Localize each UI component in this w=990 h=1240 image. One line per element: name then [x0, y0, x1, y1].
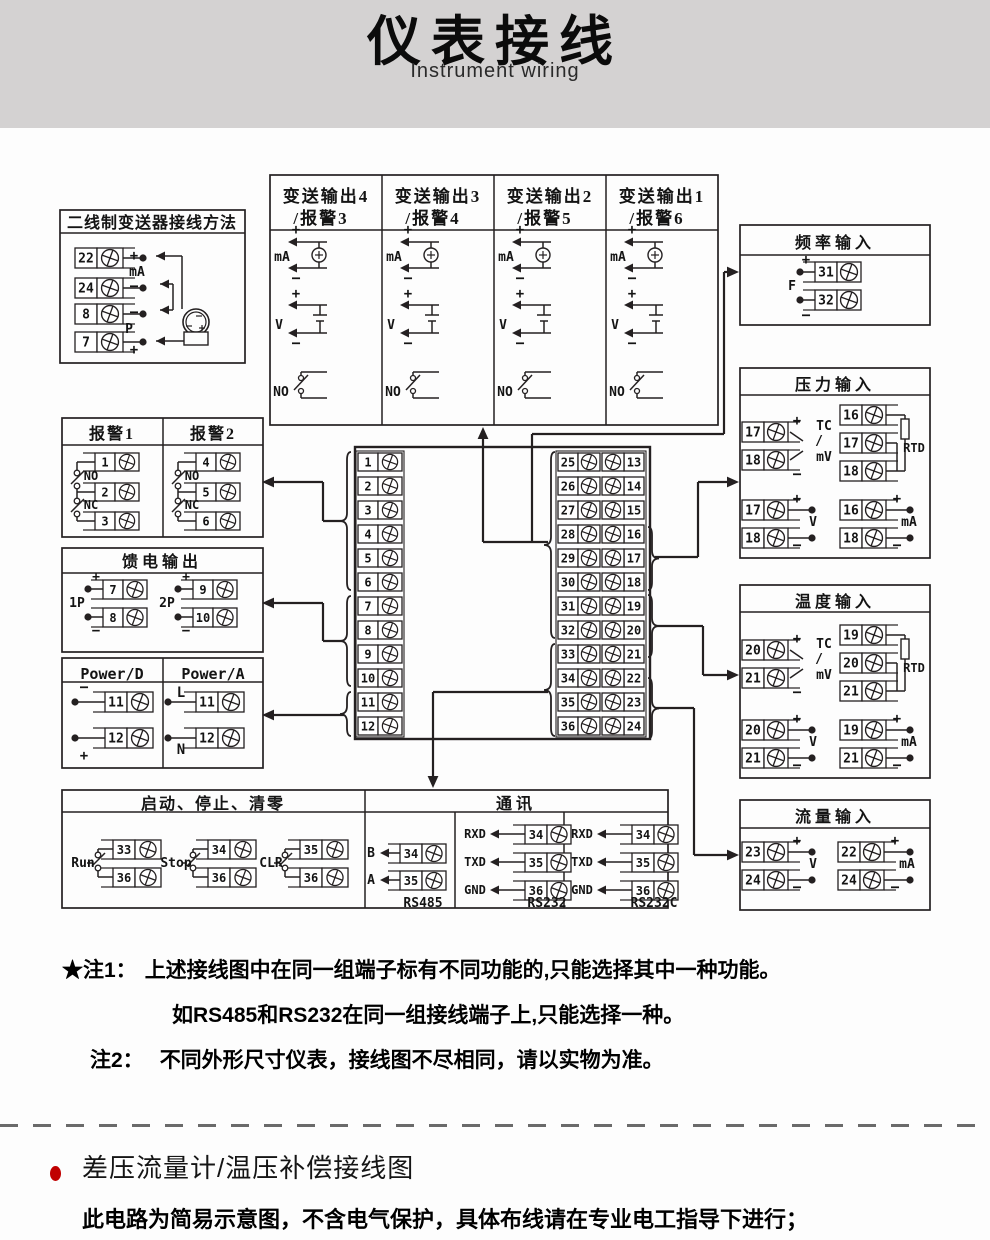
switch-contact-icon [95, 852, 101, 858]
terminal-number: 24 [745, 874, 761, 889]
terminal-number: 16 [843, 409, 859, 424]
terminal-number: 14 [627, 480, 641, 494]
label: 1P [69, 596, 85, 611]
terminal-number: 6 [364, 576, 371, 590]
label: − [627, 334, 636, 352]
arrowhead-icon [727, 267, 739, 278]
wire-dot [174, 585, 181, 592]
red-bullet-icon [50, 1166, 61, 1181]
brace [544, 452, 555, 638]
label: + [292, 222, 300, 238]
terminal-number: 34 [212, 843, 226, 857]
terminal-number: 34 [636, 828, 650, 842]
label: NC [84, 498, 98, 512]
note1-line2: 如RS485和RS232在同一组接线端子上,只能选择一种。 [172, 1004, 684, 1027]
wire-dot [174, 613, 181, 620]
label: TXD [571, 855, 593, 869]
terminal-number: 23 [745, 846, 761, 861]
label: − [403, 269, 412, 287]
arrowhead-icon [490, 830, 499, 839]
label: − [182, 623, 190, 639]
terminal-number: 6 [202, 515, 209, 529]
label: RXD [464, 827, 486, 841]
wire-dot [906, 754, 913, 761]
wire [71, 471, 84, 484]
transmitter-icon [183, 309, 209, 335]
label: mV [816, 668, 832, 683]
wire-dot [906, 506, 913, 513]
label: V [809, 735, 817, 750]
box-title: Power/A [181, 665, 244, 683]
label: + [130, 248, 138, 264]
wire-dot [906, 726, 913, 733]
terminal-number: 20 [843, 657, 859, 672]
terminal-number: 24 [841, 874, 857, 889]
wire-dot [808, 754, 815, 761]
note-2-row: 注2：不同外形尺寸仪表，接线图不尽相同，请以实物为准。 [62, 1046, 967, 1075]
label: NO [185, 469, 199, 483]
box-title: 流量输入 [795, 807, 875, 826]
box-title: 频率输入 [795, 233, 875, 252]
arrowhead-icon [400, 238, 409, 247]
terminal-number: 18 [843, 465, 859, 480]
terminal-number: 23 [627, 696, 641, 710]
arrowhead-icon [512, 238, 521, 247]
switch-contact-icon [175, 470, 181, 476]
wire [630, 375, 644, 390]
box-title: /报警6 [628, 208, 684, 228]
label: / [815, 652, 823, 667]
switch-contact-icon [411, 389, 416, 394]
box-title: /报警3 [292, 208, 348, 228]
switch-contact-icon [635, 376, 640, 381]
label: + [404, 286, 412, 302]
terminal-number: 9 [199, 583, 206, 597]
label: − [79, 678, 88, 696]
label: mA [610, 250, 626, 265]
terminal-number: 33 [561, 648, 575, 662]
terminal-number: 19 [843, 629, 859, 644]
label: / [815, 434, 823, 449]
brace [340, 692, 351, 736]
switch-contact-icon [74, 511, 80, 517]
arrowhead-icon [490, 886, 499, 895]
label: F [788, 279, 796, 294]
wire-dot [808, 506, 815, 513]
label: + [292, 286, 300, 302]
box-title: 启动、停止、清零 [141, 794, 285, 813]
terminal-number: 34 [561, 672, 575, 686]
label: L [177, 685, 185, 701]
terminal-number: 17 [627, 552, 641, 566]
terminal-number: 21 [745, 672, 761, 687]
terminal-number: 35 [304, 843, 318, 857]
switch-contact-icon [74, 483, 80, 489]
terminal-number: 1 [101, 456, 108, 470]
terminal-number: 11 [199, 696, 215, 711]
switch-contact-icon [282, 852, 288, 858]
terminal-number: 9 [364, 648, 371, 662]
label: NO [497, 385, 513, 400]
label: N [177, 742, 185, 758]
transmitter-flange [184, 332, 208, 345]
label: mV [816, 450, 832, 465]
label: − [129, 277, 138, 295]
label: − [291, 334, 300, 352]
arrowhead-icon [380, 876, 389, 885]
label: TC [816, 419, 832, 434]
terminal-number: 36 [117, 871, 131, 885]
arrowhead-icon [727, 850, 739, 861]
terminal-number: 18 [745, 454, 761, 469]
label: − [792, 536, 801, 554]
circle-icon [186, 312, 206, 332]
arrowhead-icon [624, 238, 633, 247]
wire [790, 669, 803, 678]
terminal-number: 35 [404, 874, 418, 888]
label: + [793, 631, 801, 647]
terminal-number: 32 [561, 624, 575, 638]
terminal-number: 27 [561, 504, 575, 518]
switch-contact-icon [175, 498, 181, 504]
page-header: 仪表接线 Instrument wiring [0, 0, 990, 128]
label: GND [571, 883, 593, 897]
wire [790, 451, 803, 460]
label: + [628, 286, 636, 302]
terminal-number: 2 [364, 480, 371, 494]
brace [544, 644, 555, 736]
label: TC [816, 637, 832, 652]
arrowhead-icon [156, 337, 165, 346]
terminal-number: 21 [843, 752, 859, 767]
terminal-number: 36 [304, 871, 318, 885]
label: A [367, 873, 375, 888]
brace [340, 452, 351, 590]
label: + [793, 711, 801, 727]
label: 2P [159, 596, 175, 611]
switch-contact-icon [175, 511, 181, 517]
label: + [404, 222, 412, 238]
label: + [516, 222, 524, 238]
switch-contact-icon [411, 376, 416, 381]
label: − [792, 683, 801, 701]
note1-text: 上述接线图中在同一组端子标有不同功能的,只能选择其中一种功能。 [145, 959, 781, 982]
wire-dot [906, 876, 913, 883]
box-title: 变送输出4 [283, 186, 370, 206]
wire [172, 499, 185, 512]
wiring-diagram: 2224873132123456789101112111233363436353… [0, 130, 990, 952]
switch-contact-icon [95, 865, 101, 871]
terminal-number: 31 [561, 600, 575, 614]
arrowhead-icon [727, 477, 739, 488]
terminal-number: 33 [117, 843, 131, 857]
arrowhead-icon [597, 858, 606, 867]
wire [790, 650, 803, 659]
label: GND [464, 883, 486, 897]
arrowhead-icon [597, 830, 606, 839]
label: + [891, 833, 899, 849]
label: − [515, 334, 524, 352]
terminal-number: 12 [361, 720, 375, 734]
terminal-number: 8 [109, 611, 116, 625]
label: V [611, 318, 619, 333]
terminal-number: 4 [364, 528, 371, 542]
arrowhead-icon [288, 238, 297, 247]
label: + [628, 222, 636, 238]
note1-label: ★注1： [62, 959, 137, 982]
terminal-number: 36 [212, 871, 226, 885]
terminal-number: 20 [745, 724, 761, 739]
terminal-number: 20 [627, 624, 641, 638]
terminal-number: 5 [364, 552, 371, 566]
label: + [893, 711, 901, 727]
resistor-icon [901, 639, 909, 659]
dashed-divider [0, 1124, 990, 1127]
terminal-number: 1 [364, 456, 371, 470]
label: NO [84, 469, 98, 483]
wire-dot [796, 268, 803, 275]
label: V [387, 318, 395, 333]
label: mA [274, 250, 290, 265]
arrowhead-icon [727, 670, 739, 681]
switch-contact-icon [74, 498, 80, 504]
label: − [515, 269, 524, 287]
label: RTD [903, 441, 925, 455]
terminal-number: 18 [843, 532, 859, 547]
label: − [403, 334, 412, 352]
box-title: 报警1 [89, 424, 135, 443]
wire-dot [164, 698, 171, 705]
terminal-number: 19 [627, 600, 641, 614]
arrowhead-icon [597, 886, 606, 895]
box-title: /报警5 [516, 208, 572, 228]
box-title: 温度输入 [794, 592, 875, 611]
switch-contact-icon [282, 865, 288, 871]
label: mA [901, 735, 917, 750]
arrowhead-icon [380, 849, 389, 858]
note-1-row: ★注1：上述接线图中在同一组端子标有不同功能的,只能选择其中一种功能。 [62, 956, 967, 985]
label: RS232C [631, 896, 678, 911]
wire-dot [139, 310, 146, 317]
wire [790, 432, 803, 441]
label: + [793, 833, 801, 849]
wire-dot [808, 726, 815, 733]
label: mA [498, 250, 514, 265]
terminal-number: 10 [196, 611, 210, 625]
wire-dot [796, 296, 803, 303]
label: mA [386, 250, 402, 265]
terminal-number: 8 [82, 308, 90, 323]
arrowhead-icon [490, 858, 499, 867]
wire-dot [906, 848, 913, 855]
terminal-number: 28 [561, 528, 575, 542]
wire [71, 499, 84, 512]
terminal-number: 21 [745, 752, 761, 767]
wire [518, 375, 532, 390]
page-subtitle: Instrument wiring [0, 60, 990, 83]
terminal-number: 18 [745, 532, 761, 547]
terminal-number: 7 [364, 600, 371, 614]
label: V [809, 857, 817, 872]
wire [406, 375, 420, 390]
label: − [792, 878, 801, 896]
label: mA [901, 515, 917, 530]
arrowhead-icon [160, 306, 169, 315]
label: + [80, 748, 88, 764]
box-title: 馈电输出 [122, 552, 202, 571]
note2-label: 注2： [90, 1049, 144, 1072]
switch-contact-icon [175, 483, 181, 489]
label: V [809, 515, 817, 530]
wire-dot [84, 585, 91, 592]
wire-dot [808, 848, 815, 855]
label: NC [185, 498, 199, 512]
terminal-number: 35 [561, 696, 575, 710]
brace [340, 596, 351, 686]
box-title: 变送输出1 [619, 186, 706, 206]
terminal-number: 20 [745, 644, 761, 659]
label: mA [899, 857, 915, 872]
label: RS485 [403, 896, 442, 911]
arrowhead-icon [478, 427, 489, 439]
terminal-number: 21 [843, 685, 859, 700]
terminal-number: 3 [101, 515, 108, 529]
note2-text: 不同外形尺寸仪表，接线图不尽相同，请以实物为准。 [160, 1049, 664, 1072]
label: + [793, 491, 801, 507]
switch-contact-icon [299, 389, 304, 394]
terminal-number: 24 [78, 282, 94, 297]
label: TXD [464, 855, 486, 869]
label: − [92, 623, 100, 639]
terminal-number: 16 [843, 504, 859, 519]
terminal-number: 31 [818, 266, 834, 281]
switch-contact-icon [523, 376, 528, 381]
terminal-number: 17 [745, 426, 761, 441]
terminal-number: 29 [561, 552, 575, 566]
wire-dot [139, 338, 146, 345]
terminal-number: 19 [843, 724, 859, 739]
arrowhead-icon [428, 776, 439, 788]
terminal-number: 34 [404, 847, 418, 861]
wire [172, 471, 185, 484]
wire-dot [139, 284, 146, 291]
label: + [802, 252, 810, 268]
label: − [129, 303, 138, 321]
terminal-number: 11 [361, 696, 375, 710]
label: Stop [160, 856, 191, 871]
terminal-number: 22 [841, 846, 857, 861]
wire-dot [71, 698, 78, 705]
terminal-number: 30 [561, 576, 575, 590]
label: CLR [259, 856, 283, 871]
label: + [793, 413, 801, 429]
label: − [890, 878, 899, 896]
box-title: /报警4 [404, 208, 460, 228]
terminal-number: 32 [818, 294, 834, 309]
label: − [627, 269, 636, 287]
label: Run [71, 856, 94, 871]
terminal-number: 22 [78, 252, 94, 267]
section-heading: 差压流量计/温压补偿接线图 [82, 1148, 414, 1185]
box-title: 二线制变送器接线方法 [67, 213, 237, 232]
label: − [801, 306, 810, 324]
terminal-number: 34 [529, 828, 543, 842]
terminal-number: 24 [627, 720, 641, 734]
label: P [125, 322, 133, 337]
arrowhead-icon [156, 252, 165, 261]
label: − [892, 536, 901, 554]
terminal-number: 21 [627, 648, 641, 662]
terminal-number: 35 [636, 856, 650, 870]
wire-dot [164, 734, 171, 741]
terminal-number: 5 [202, 486, 209, 500]
terminal-number: 36 [561, 720, 575, 734]
wire-dot [139, 254, 146, 261]
wire-dot [84, 613, 91, 620]
label: B [367, 846, 375, 861]
terminal-number: 7 [109, 583, 116, 597]
terminal-number: 35 [529, 856, 543, 870]
box-title: 报警2 [190, 424, 236, 443]
label: + [182, 570, 190, 585]
box-title: 变送输出2 [507, 186, 594, 206]
terminal-number: 16 [627, 528, 641, 542]
terminal-number: 15 [627, 504, 641, 518]
label: + [130, 342, 138, 358]
label: + [92, 570, 100, 585]
label: − [892, 756, 901, 774]
terminal-number: 17 [745, 504, 761, 519]
switch-contact-icon [523, 389, 528, 394]
terminal-number: 12 [199, 732, 215, 747]
switch-contact-icon [635, 389, 640, 394]
label: − [792, 756, 801, 774]
wire-dot [808, 876, 815, 883]
label: RXD [571, 827, 593, 841]
terminal-number: 26 [561, 480, 575, 494]
terminal-number: 8 [364, 624, 371, 638]
terminal-number: 22 [627, 672, 641, 686]
label: NO [385, 385, 401, 400]
label: − [291, 269, 300, 287]
label: RTD [903, 661, 925, 675]
terminal-number: 3 [364, 504, 371, 518]
terminal-number: 12 [108, 732, 124, 747]
label: V [275, 318, 283, 333]
label: + [516, 286, 524, 302]
terminal-number: 18 [627, 576, 641, 590]
section-body: 此电路为简易示意图，不含电气保护，具体布线请在专业电工指导下进行； [82, 1202, 808, 1234]
terminal-number: 13 [627, 456, 641, 470]
resistor-icon [901, 419, 909, 439]
terminal-number: 11 [108, 696, 124, 711]
switch-contact-icon [74, 470, 80, 476]
box-title: Power/D [80, 665, 143, 683]
switch-contact-icon [299, 376, 304, 381]
wire-dot [808, 534, 815, 541]
notes-block: ★注1：上述接线图中在同一组端子标有不同功能的,只能选择其中一种功能。 如RS4… [62, 956, 967, 1091]
wire [294, 375, 308, 390]
terminal-number: 4 [202, 456, 209, 470]
label: V [499, 318, 507, 333]
label: + [893, 491, 901, 507]
label: − [792, 465, 801, 483]
terminal-number: 25 [561, 456, 575, 470]
terminal-number: 2 [101, 486, 108, 500]
terminal-number: 10 [361, 672, 375, 686]
box-title: 变送输出3 [395, 186, 482, 206]
box-title: 压力输入 [795, 375, 875, 394]
